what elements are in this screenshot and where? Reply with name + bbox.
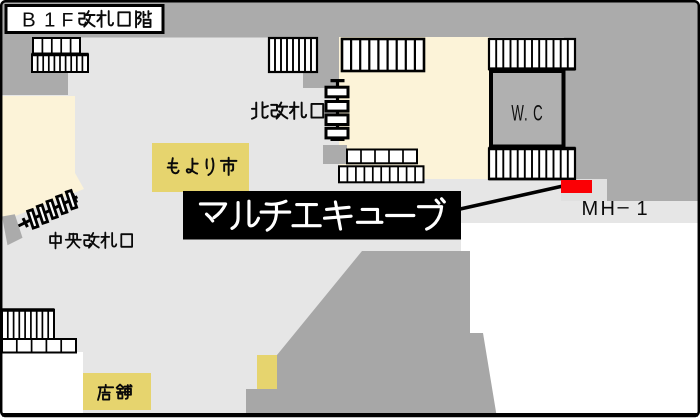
svg-text:M: M [582, 198, 599, 220]
svg-text:H: H [601, 198, 615, 220]
svg-text:1: 1 [637, 198, 648, 220]
svg-text:W. C: W. C [511, 101, 543, 125]
svg-text:1: 1 [44, 9, 55, 32]
svg-text:F: F [62, 10, 74, 32]
svg-text:B: B [22, 9, 36, 32]
svg-text:–: – [618, 196, 630, 218]
